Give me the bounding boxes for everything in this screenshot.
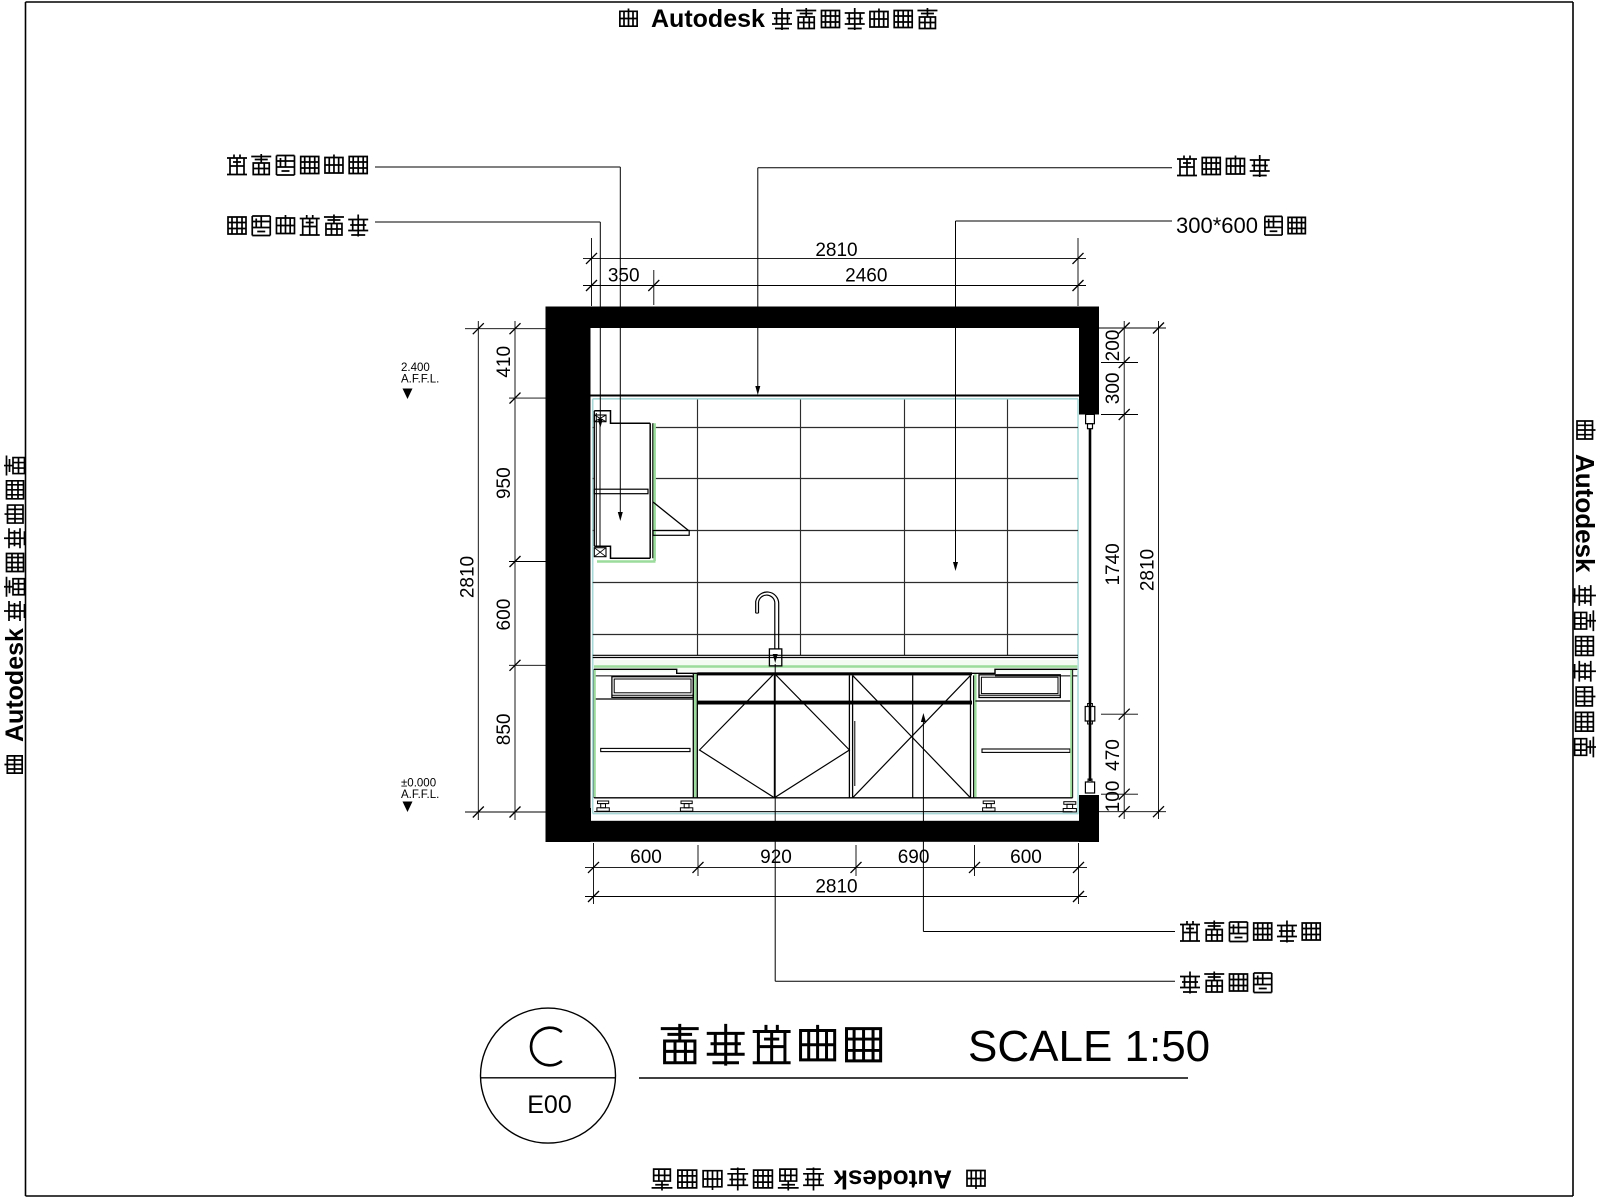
svg-text:470: 470 (1103, 739, 1124, 771)
svg-text:850: 850 (494, 714, 515, 746)
svg-text:200: 200 (1103, 330, 1124, 362)
svg-text:1740: 1740 (1103, 543, 1124, 585)
svg-text:2810: 2810 (815, 240, 857, 261)
svg-text:2810: 2810 (1138, 549, 1159, 591)
svg-text:100: 100 (1103, 781, 1124, 813)
svg-text:Autodesk: Autodesk (1570, 454, 1600, 573)
svg-text:600: 600 (1010, 847, 1042, 868)
svg-text:410: 410 (494, 346, 515, 378)
svg-text:2810: 2810 (815, 877, 857, 898)
svg-text:A.F.F.L.: A.F.F.L. (401, 374, 439, 386)
svg-text:2810: 2810 (458, 556, 479, 598)
svg-text:Autodesk: Autodesk (651, 5, 765, 33)
svg-text:Autodesk: Autodesk (1, 628, 29, 742)
svg-text:2460: 2460 (845, 266, 887, 287)
svg-text:Autodesk: Autodesk (833, 1165, 952, 1195)
svg-text:SCALE 1:50: SCALE 1:50 (968, 1022, 1210, 1071)
svg-text:600: 600 (630, 847, 662, 868)
svg-text:±0.000: ±0.000 (401, 778, 436, 790)
svg-text:350: 350 (608, 266, 640, 287)
svg-text:920: 920 (760, 847, 792, 868)
svg-text:300*600: 300*600 (1176, 213, 1258, 238)
svg-text:600: 600 (494, 599, 515, 631)
svg-text:2.400: 2.400 (401, 362, 430, 374)
svg-text:690: 690 (898, 847, 930, 868)
svg-text:300: 300 (1103, 373, 1124, 405)
svg-text:E00: E00 (527, 1091, 571, 1119)
svg-text:950: 950 (494, 467, 515, 499)
svg-text:A.F.F.L.: A.F.F.L. (401, 789, 439, 801)
